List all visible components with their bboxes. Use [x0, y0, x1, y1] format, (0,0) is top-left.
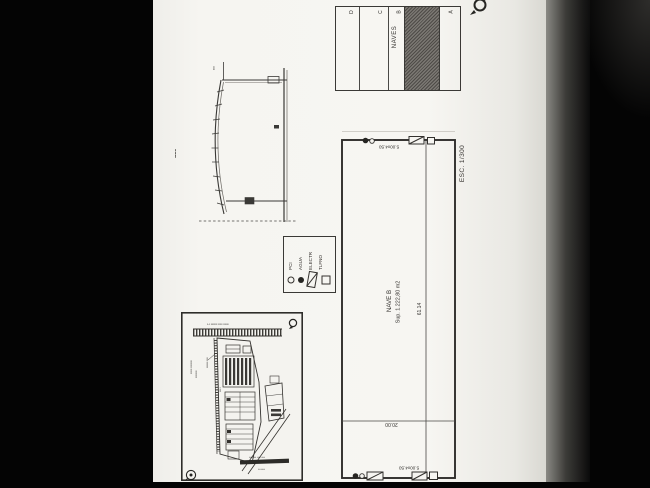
key-divider — [359, 7, 360, 90]
open-circle-icon — [360, 474, 365, 479]
filled-circle-icon — [353, 473, 359, 479]
naves-key-diagram: D C B A NAVES — [335, 6, 461, 91]
scan-corner-glow — [580, 0, 650, 120]
key-strip-b-hatched — [404, 7, 440, 90]
dim-length: 61.14 — [417, 303, 423, 316]
filled-circle-icon — [363, 138, 369, 144]
open-square-icon — [428, 138, 435, 145]
illegible-left-caption-2: ▪▪▪▪▪▪▪ — [194, 371, 198, 378]
slashed-rect-icon — [412, 472, 427, 480]
key-strip-label-b: B — [398, 9, 401, 15]
legend-label-tlfno: TLFNO — [318, 255, 323, 270]
open-circle-icon — [370, 139, 375, 144]
site-location-plan: ▪-▪ ▪▪▪▪▪▪ ▪▪▪▪ ▪▪▪▪▪ — [181, 312, 303, 481]
site-plan-border — [182, 313, 302, 480]
key-strip-label-d: D — [350, 9, 354, 15]
illegible-mid-caption: ▪▪▪ ▪ — [218, 387, 222, 392]
naves-key-title: NAVES — [380, 34, 410, 40]
nave-area: Sup. 1.222,80 m2 — [396, 281, 402, 324]
section-drawing: ▪▪▪ — [198, 40, 300, 232]
key-divider — [388, 7, 389, 90]
illegible-leader-caption: ▪▪▪▪▪▪ ▪▪▪▪ — [205, 357, 209, 368]
legend-label-electr: ELECTR — [308, 251, 313, 270]
dim-width: 20.00 — [385, 421, 398, 427]
open-square-icon — [430, 472, 438, 480]
open-circle-icon — [288, 277, 294, 283]
filled-circle-icon — [298, 277, 304, 283]
scanned-sheet: D C B A NAVES ▪ — [0, 0, 650, 488]
slashed-rect-icon — [367, 472, 383, 480]
key-strip-label-a: A — [450, 9, 453, 15]
section-base-box — [245, 198, 254, 205]
scale-label: ESC. 1/300 — [441, 160, 485, 167]
illegible-road-caption-bottom: ▪▪ ▪▪▪▪▪ — [258, 468, 265, 471]
utilities-legend: PCI AGUA ELECTR TLFNO — [283, 236, 336, 293]
open-square-icon — [322, 276, 330, 284]
module-dim-bottom: 5.00x4.50 — [398, 466, 419, 471]
north-arrow-icon — [468, 0, 492, 18]
illegible-railway-caption: ▪-▪ ▪▪▪▪▪▪ ▪▪▪▪ ▪▪▪▪▪ — [207, 322, 229, 326]
section-annotation: ▪▪▪ — [212, 66, 216, 70]
nave-name: NAVE B — [386, 290, 393, 312]
legend-label-pci: PCI — [288, 262, 293, 270]
slashed-rect-icon — [307, 271, 317, 287]
illegible-road-caption-top: ▪▪▪▪▪▪▪▪ ▪▪▪▪ ▪▪▪▪ — [249, 456, 265, 459]
module-dim-top: 5.00x4.50 — [378, 145, 399, 150]
slashed-rect-icon — [409, 137, 424, 145]
nave-b-floor-plan: NAVE B Sup. 1.222,80 m2 61.14 20.00 5.00… — [336, 126, 463, 482]
key-strip-label-c: C — [379, 9, 383, 15]
section-level-marker — [274, 125, 279, 129]
section-side-caption: ▪▪▪▪ ▪▪▪ ▪▪▪ — [166, 138, 188, 172]
illegible-left-caption-1: ▪▪▪▪▪ ▪▪▪▪▪▪▪ — [189, 360, 193, 374]
legend-label-agua: AGUA — [298, 256, 303, 270]
